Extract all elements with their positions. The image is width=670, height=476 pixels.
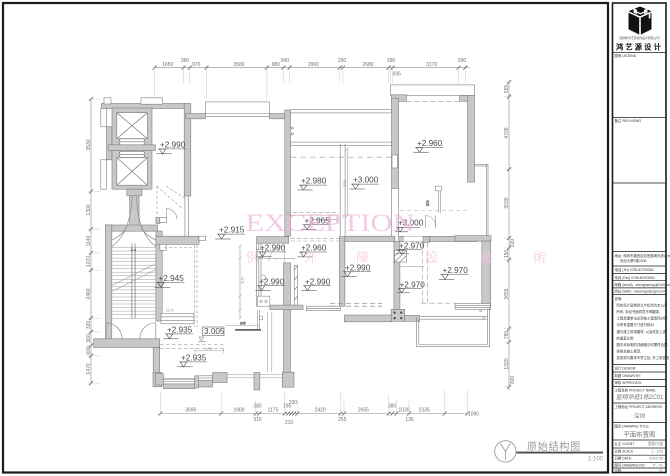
svg-text:1730: 1730	[205, 347, 213, 351]
svg-text:780: 780	[504, 331, 510, 340]
svg-text:1175: 1175	[268, 408, 279, 414]
svg-text:設: 設	[425, 250, 438, 265]
svg-text:360: 360	[181, 58, 190, 64]
svg-text:陳: 陳	[356, 250, 369, 265]
svg-text:皇翔华庭1栋2C01: 皇翔华庭1栋2C01	[616, 393, 664, 401]
svg-text:150: 150	[504, 250, 510, 259]
svg-text:1070: 1070	[86, 256, 92, 267]
svg-text:邮箱 (email) : zhenghanhyy@163.c: 邮箱 (email) : zhenghanhyy@163.com	[615, 282, 670, 287]
svg-text:遇与施工现场图样, 以及改变上述: 遇与施工现场图样, 以及改变上述	[617, 329, 667, 334]
svg-text:所有, 未经书面同意不得翻录.: 所有, 未经书面同意不得翻录.	[617, 309, 661, 314]
svg-text:家相关施工规范.: 家相关施工规范.	[617, 349, 642, 354]
svg-text:3170: 3170	[426, 62, 437, 68]
svg-text:+2.990: +2.990	[305, 277, 331, 286]
svg-text:380: 380	[253, 404, 262, 410]
svg-text:+2.970: +2.970	[400, 280, 426, 289]
svg-text:255: 255	[338, 417, 347, 423]
svg-text:电话 (Tel) 0755-82793362: 电话 (Tel) 0755-82793362	[615, 267, 654, 272]
svg-text:230: 230	[289, 400, 298, 406]
svg-text:1090: 1090	[468, 411, 479, 417]
svg-text:3.005: 3.005	[204, 327, 225, 336]
svg-text:2420: 2420	[315, 408, 326, 414]
svg-text:深圳: 深圳	[634, 412, 646, 420]
svg-text:EXCEPTION: EXCEPTION	[246, 210, 415, 237]
svg-text:图号 DRAWING NO:: 图号 DRAWING NO:	[615, 463, 646, 468]
svg-text:570: 570	[426, 200, 430, 206]
svg-text:2010.05: 2010.05	[649, 457, 663, 461]
svg-text:+2.990: +2.990	[260, 244, 286, 253]
svg-text:图名 DRAWING TITLE:: 图名 DRAWING TITLE:	[615, 424, 650, 429]
svg-text:2680: 2680	[362, 62, 373, 68]
svg-text:地址: 深圳市福田区彩田路海天综合大: 地址: 深圳市福田区彩田路海天综合大	[615, 253, 670, 258]
svg-text:200: 200	[510, 376, 516, 385]
svg-text:页数:: 页数:	[615, 468, 623, 473]
svg-text:+2.970: +2.970	[399, 241, 425, 250]
svg-text:原始结构图: 原始结构图	[527, 440, 581, 453]
svg-text:3130: 3130	[241, 276, 245, 284]
svg-text:+2.915: +2.915	[219, 226, 245, 235]
svg-text:工程承建单位必须依工程现场对图: 工程承建单位必须依工程现场对图	[617, 316, 668, 321]
svg-text:320: 320	[86, 321, 92, 330]
svg-text:980: 980	[272, 62, 281, 68]
svg-text:600: 600	[86, 346, 92, 355]
svg-text:平面布置图: 平面布置图	[624, 430, 656, 439]
svg-text:比例 SCALE: 比例 SCALE	[615, 449, 635, 454]
svg-text:+2.960: +2.960	[417, 139, 443, 148]
svg-text:1 : 100: 1 : 100	[651, 450, 663, 454]
svg-text:+2.990: +2.990	[160, 141, 186, 150]
svg-text:1:100: 1:100	[588, 457, 604, 463]
svg-text:385: 385	[388, 404, 397, 410]
svg-text:1470: 1470	[86, 363, 92, 374]
svg-text:695: 695	[393, 72, 402, 78]
svg-text:1320: 1320	[504, 358, 510, 369]
svg-text:工程名称 PROJECT NAME:: 工程名称 PROJECT NAME:	[615, 388, 657, 393]
svg-text:3530: 3530	[86, 139, 92, 150]
svg-text:+2.945: +2.945	[159, 274, 185, 283]
svg-text:所有设计复制时之产权均为本公司: 所有设计复制时之产权均为本公司	[617, 302, 668, 307]
svg-text:藝: 藝	[480, 250, 493, 265]
svg-text:1650: 1650	[162, 62, 173, 68]
svg-text:中所有重要尺寸进行核对.: 中所有重要尺寸进行核对.	[617, 322, 655, 327]
svg-text:审核 APPROVED:: 审核 APPROVED:	[615, 380, 643, 385]
svg-text:1900: 1900	[233, 408, 244, 414]
svg-text:590: 590	[458, 58, 467, 64]
svg-text:4705: 4705	[504, 127, 510, 138]
svg-text:970: 970	[192, 62, 201, 68]
svg-text:220: 220	[510, 239, 516, 248]
svg-text:+2.970: +2.970	[443, 266, 469, 275]
svg-text:外: 外	[304, 250, 317, 265]
svg-text:345: 345	[240, 321, 246, 325]
svg-text:01: 01	[659, 469, 663, 473]
svg-text:3655: 3655	[504, 288, 510, 299]
svg-text:2830: 2830	[343, 179, 347, 187]
svg-text:135: 135	[405, 417, 414, 423]
svg-text:的重复比例.: 的重复比例.	[617, 335, 635, 340]
svg-text:+3.000: +3.000	[353, 176, 379, 185]
svg-text:1140: 1140	[86, 235, 92, 246]
svg-text:360: 360	[86, 334, 92, 343]
svg-text:1030: 1030	[398, 408, 409, 414]
svg-text:3695: 3695	[185, 408, 196, 414]
svg-text:如发现与要求不符之处, 开工前告知.: 如发现与要求不符之处, 开工前告知.	[617, 355, 670, 360]
svg-text:工程地址 PROJECT ADDRESS:: 工程地址 PROJECT ADDRESS:	[615, 404, 663, 409]
svg-text:術: 術	[533, 250, 546, 265]
svg-text:传真 (Fax) 0755-82793952: 传真 (Fax) 0755-82793952	[615, 275, 655, 280]
svg-text:2335: 2335	[419, 408, 430, 414]
svg-text:〈深圳市鸿艺源室内设计有限公司〉: 〈深圳市鸿艺源室内设计有限公司〉	[617, 36, 662, 40]
svg-text:3580: 3580	[233, 62, 244, 68]
svg-text:网址 (Web) : www.hyydesign.com: 网址 (Web) : www.hyydesign.com	[615, 289, 666, 294]
svg-text:P - 01: P - 01	[653, 464, 663, 468]
svg-text:210: 210	[285, 420, 294, 426]
svg-text:制图 DRAWN BY:: 制图 DRAWN BY:	[615, 373, 642, 378]
svg-text:2960: 2960	[308, 62, 319, 68]
svg-text:1300: 1300	[86, 204, 92, 215]
svg-text:250: 250	[338, 58, 347, 64]
svg-text:+2.935: +2.935	[181, 354, 207, 363]
svg-text:3030: 3030	[504, 197, 510, 208]
svg-text:+2.980: +2.980	[301, 177, 327, 186]
svg-text:555: 555	[504, 85, 510, 94]
svg-text:说明:: 说明:	[615, 296, 623, 301]
svg-text:2655: 2655	[358, 408, 369, 414]
svg-text:例: 例	[246, 250, 259, 265]
svg-text:290: 290	[387, 58, 396, 64]
svg-text:日期 DATE:: 日期 DATE:	[615, 456, 633, 461]
svg-text:图中未标明的详细做法均需符合国: 图中未标明的详细做法均需符合国	[617, 342, 668, 347]
svg-text:2175: 2175	[166, 309, 174, 313]
svg-text:+2.935: +2.935	[167, 326, 193, 335]
svg-text:315: 315	[253, 417, 262, 423]
svg-text:世纪大厦9楼2406: 世纪大厦9楼2406	[620, 258, 646, 263]
svg-text:图例 LEGEND: 图例 LEGEND	[615, 53, 637, 58]
svg-text:备注 REV:0/DWG: 备注 REV:0/DWG	[615, 118, 642, 123]
svg-text:设计 DESIGN:: 设计 DESIGN:	[615, 365, 637, 370]
svg-text:+2.990: +2.990	[259, 277, 285, 286]
svg-text:业主 CLIENT: 业主 CLIENT	[615, 441, 635, 446]
svg-text:皇翔小姐: 皇翔小姐	[648, 441, 663, 446]
svg-text:鸿艺源设计: 鸿艺源设计	[616, 43, 663, 52]
svg-text:340: 340	[281, 58, 290, 64]
svg-text:2460: 2460	[86, 288, 92, 299]
